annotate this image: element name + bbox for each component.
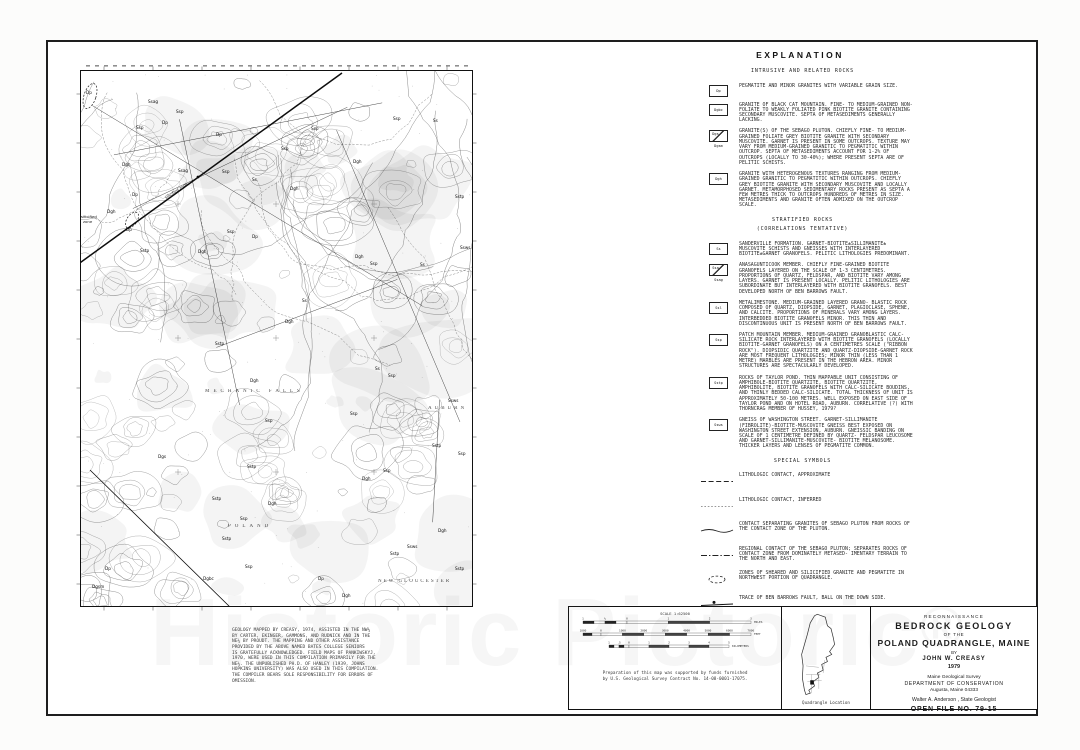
special-symbol-row: REGIONAL CONTACT OF THE SEBAGO PLUTON; S… [700, 547, 1012, 566]
map-unit-label: Ssag [178, 168, 188, 173]
title-reconnaissance: RECONNAISSANCE [871, 614, 1037, 619]
unit-label: Sstp [714, 381, 723, 385]
quadrangle-location-caption: Quadrangle Location [782, 700, 870, 705]
unit-label: Dgs [712, 132, 719, 136]
svg-text:5000: 5000 [705, 629, 712, 633]
map-unit-label: Sstp [455, 566, 464, 571]
svg-text:0: 0 [626, 617, 628, 621]
explanation-entry: SswsGNEISS OF WASHINGTON STREET. GARNET-… [700, 418, 1012, 449]
map-unit-label: Dgh [362, 476, 371, 481]
map-place-name: NEW GLOUCESTER [378, 579, 451, 584]
symbol-description: ZONES OF SHEARED AND SILICIFIED GRANITE … [739, 571, 915, 581]
title-address: Augusta, Maine 04333 [871, 688, 1037, 693]
map-unit-label: Dgh [342, 593, 351, 598]
unit-label: Ssl [715, 306, 722, 310]
svg-text:FEET: FEET [754, 632, 761, 636]
symbol-dot-icon [700, 498, 737, 517]
svg-text:.5: .5 [617, 641, 621, 645]
map-unit-label: Dp [86, 90, 92, 95]
unit-label: Dgh [715, 177, 722, 181]
unit-symbol: Sstp [700, 376, 737, 413]
explanation-entry: DgbcGRANITE OF BLACK CAT MOUNTAIN. FINE-… [700, 103, 1012, 124]
svg-text:2000: 2000 [640, 629, 647, 633]
special-symbol-row: LITHOLOGIC CONTACT, APPROXIMATE [700, 473, 1012, 492]
map-unit-label: Dgh [353, 159, 362, 164]
map-place-name: POLAND [228, 524, 272, 529]
unit-box-dgs: Dgs [709, 130, 728, 142]
map-unit-label: Sstp [455, 194, 464, 199]
map-unit-label: Dp [318, 576, 324, 581]
unit-box-dgbc: Dgbc [709, 104, 728, 116]
explanation-entries: INTRUSIVE AND RELATED ROCKSDpPEGMATITE A… [700, 69, 1012, 615]
map-unit-label: Ssp [383, 468, 391, 473]
unit-description: PATCH MOUNTAIN MEMBER. MEDIUM-GRAINED GR… [739, 333, 915, 370]
symbol-description: REGIONAL CONTACT OF THE SEBAGO PLUTON; S… [739, 547, 915, 563]
explanation-entry: SsSANDERVILLE FORMATION. GARNET-BIOTITE±… [700, 242, 1012, 258]
unit-sublabel: Ssag [714, 278, 723, 282]
map-unit-label: Ssp [370, 261, 378, 266]
map-unit-label: Dgs [158, 454, 166, 459]
map-unit-label: Dgh [438, 528, 447, 533]
unit-symbol: SsaSsag [700, 263, 737, 294]
map-unit-label: Sstp [222, 536, 231, 541]
map-unit-label: Ssp [350, 411, 358, 416]
map-unit-label: Ssp [265, 418, 273, 423]
map-unit-label: Dp [216, 132, 222, 137]
title-block: RECONNAISSANCE BEDROCK GEOLOGY OF THE PO… [871, 607, 1037, 709]
stratified-subheader: (CORRELATIONS TENTATIVE) [700, 227, 905, 233]
title-year: 1979 [871, 664, 1037, 670]
map-unit-label: Dgh [290, 186, 299, 191]
map-unit-label: Ssws [407, 544, 417, 549]
unit-box-dp: Dp [709, 85, 728, 97]
map-place-name: MECHANIC FALLS [205, 389, 304, 394]
title-survey: Maine Geological Survey [871, 675, 1037, 680]
location-panel: Quadrangle Location [782, 607, 871, 709]
map-unit-label: Dp [105, 566, 111, 571]
svg-text:3: 3 [750, 617, 752, 621]
map-unit-label: Dgh [355, 254, 364, 259]
explanation-panel: EXPLANATION INTRUSIVE AND RELATED ROCKSD… [700, 50, 1012, 620]
svg-text:1: 1 [608, 641, 610, 645]
unit-label: Dp [716, 89, 720, 93]
unit-symbol: Ssp [700, 333, 737, 370]
title-by: BY [871, 650, 1037, 655]
unit-description: GRANITE WITH HETEROGENOUS TEXTURES RANGI… [739, 172, 915, 209]
map-unit-label: Dp [162, 120, 168, 125]
map-unit-label: Dp [132, 192, 138, 197]
map-unit-label: Ssp [458, 451, 466, 456]
title-author: JOHN W. CREASY [871, 656, 1037, 662]
svg-text:1: 1 [648, 641, 650, 645]
map-unit-label: Dgh [285, 319, 294, 324]
unit-sublabel: Dgsm [714, 144, 723, 148]
map-unit-label: Ss [420, 262, 425, 267]
unit-label: Dgbc [714, 108, 723, 112]
map-unit-label: Ssag [148, 99, 158, 104]
title-department: DEPARTMENT OF CONSERVATION [871, 681, 1037, 687]
quadrangle-location-marker [810, 680, 814, 684]
intrusive-header: INTRUSIVE AND RELATED ROCKS [700, 69, 905, 75]
unit-label: Ssws [714, 423, 723, 427]
explanation-entry: SspPATCH MOUNTAIN MEMBER. MEDIUM-GRAINED… [700, 333, 1012, 370]
unit-box-ssl: Ssl [709, 302, 728, 314]
map-unit-label: Dp [252, 234, 258, 239]
stratified-header: STRATIFIED ROCKS [700, 218, 905, 224]
unit-box-dgh: Dgh [709, 173, 728, 185]
unit-description: GRANITE OF BLACK CAT MOUNTAIN. FINE- TO … [739, 103, 915, 124]
geologic-map: DpSsagSspDpSspDpDghSsagSspSsDpDghDpSstpS… [80, 70, 473, 607]
svg-text:5: 5 [728, 641, 730, 645]
svg-text:1000: 1000 [619, 629, 626, 633]
map-unit-label: Ssp [240, 516, 248, 521]
support-note: Preparation of this map was supported by… [569, 671, 781, 682]
special-symbol-row: ZONES OF SHEARED AND SILICIFIED GRANITE … [700, 571, 1012, 590]
map-unit-label: Sstp [390, 551, 399, 556]
credits-note: GEOLOGY MAPPED BY CREASY, 1974, ASSISTED… [232, 628, 422, 684]
map-unit-label: Dgh [107, 209, 116, 214]
svg-text:3000: 3000 [662, 629, 669, 633]
footer-block: SCALE 1:625001½0123MILES1000010002000300… [568, 606, 1038, 710]
unit-description: GNEISS OF WASHINGTON STREET. GARNET-SILL… [739, 418, 915, 449]
map-unit-label: Ssp [311, 126, 319, 131]
symbol-description: LITHOLOGIC CONTACT, INFERRED [739, 498, 915, 503]
svg-text:0: 0 [600, 629, 602, 633]
map-unit-label: Sstp [247, 464, 256, 469]
map-place-name: AUBURN [428, 406, 467, 411]
unit-symbol: Dp [700, 84, 737, 97]
svg-text:4000: 4000 [683, 629, 690, 633]
svg-text:3: 3 [688, 641, 690, 645]
map-unit-label: Ssp [176, 109, 184, 114]
unit-symbol: Ssl [700, 301, 737, 327]
scale-bars: SCALE 1:625001½0123MILES1000010002000300… [569, 607, 781, 669]
explanation-entry: SslMETALIMESTONE. MEDIUM-GRAINED LAYERED… [700, 301, 1012, 327]
map-unit-label: Sstp [215, 341, 224, 346]
symbol-description: TRACE OF BEN BARROWS FAULT, BALL ON THE … [739, 596, 915, 601]
svg-text:0: 0 [628, 641, 630, 645]
unit-description: GRANITE(S) OF THE SEBAGO PLUTON. CHIEFLY… [739, 129, 915, 166]
map-unit-label: Dgsm [92, 584, 104, 589]
unit-label: Ss [716, 247, 720, 251]
map-unit-label: Sstp [140, 248, 149, 253]
symbol-dash-icon [700, 473, 737, 492]
unit-symbol: DgsDgsm [700, 129, 737, 166]
svg-text:2: 2 [709, 617, 711, 621]
special-symbol-row: CONTACT SEPARATING GRANITES OF SEBAGO PL… [700, 522, 1012, 541]
map-unit-label: Dgbc [203, 576, 215, 581]
map-unit-label: Ssp [393, 116, 401, 121]
map-unit-label: Sstp [432, 443, 441, 448]
title-state-geologist: Walter A. Anderson , State Geologist [871, 697, 1037, 703]
map-unit-label: Sstp [212, 496, 221, 501]
unit-description: ANASAGUNTICOOK MEMBER. CHIEFLY FINE-GRAI… [739, 263, 915, 294]
unit-symbol: Ss [700, 242, 737, 258]
title-quadrangle: POLAND QUADRANGLE, MAINE [871, 638, 1037, 648]
unit-description: METALIMESTONE. MEDIUM-GRAINED LAYERED GR… [739, 301, 915, 327]
map-unit-label: Dgh [122, 162, 131, 167]
svg-text:1: 1 [667, 617, 669, 621]
symbol-ellipse-icon [700, 571, 737, 590]
maine-outline-map [782, 610, 870, 696]
map-unit-label: Ssp [245, 564, 253, 569]
map-unit-label: Ss [252, 177, 257, 182]
map-unit-label: Dgh [250, 378, 259, 383]
map-unit-label: Ssws [460, 245, 470, 250]
map-unit-label: Dgh [268, 501, 277, 506]
symbol-description: CONTACT SEPARATING GRANITES OF SEBAGO PL… [739, 522, 915, 532]
unit-label: Ssa [712, 266, 719, 270]
map-unit-label: Ss [375, 366, 380, 371]
explanation-title: EXPLANATION [700, 50, 900, 60]
unit-symbol: Dgbc [700, 103, 737, 124]
title-open-file: OPEN FILE NO. 79-15 [871, 706, 1037, 713]
map-unit-label: Ssp [281, 146, 289, 151]
map-annotation: zone [83, 219, 93, 224]
unit-label: Ssp [715, 338, 722, 342]
svg-text:4: 4 [708, 641, 710, 645]
map-unit-label: Ssp [388, 373, 396, 378]
unit-box-ssp: Ssp [709, 334, 728, 346]
scale-panel: SCALE 1:625001½0123MILES1000010002000300… [569, 607, 782, 709]
special-symbols-header: SPECIAL SYMBOLS [700, 459, 905, 465]
unit-box-ssws: Ssws [709, 419, 728, 431]
svg-text:1000: 1000 [580, 629, 587, 633]
map-unit-label: Ssp [136, 125, 144, 130]
symbol-dashdot-icon [700, 547, 737, 566]
symbol-solid-icon [700, 522, 737, 541]
explanation-entry: DghGRANITE WITH HETEROGENOUS TEXTURES RA… [700, 172, 1012, 209]
unit-description: ROCKS OF TAYLOR POND. THIN MAPPABLE UNIT… [739, 376, 915, 413]
map-unit-label: Ssp [227, 229, 235, 234]
explanation-entry: SstpROCKS OF TAYLOR POND. THIN MAPPABLE … [700, 376, 1012, 413]
map-unit-label: Ssp [222, 169, 230, 174]
explanation-entry: SsaSsagANASAGUNTICOOK MEMBER. CHIEFLY FI… [700, 263, 1012, 294]
svg-text:KILOMETERS: KILOMETERS [732, 644, 749, 648]
map-unit-label: Ss [302, 298, 307, 303]
map-sheet-page: { "watermark": {"text": "Historic Pictor… [0, 0, 1080, 750]
map-unit-label: Dgh [198, 249, 207, 254]
svg-text:2: 2 [668, 641, 670, 645]
svg-text:1: 1 [582, 617, 584, 621]
geologic-map-image: DpSsagSspDpSspDpDghSsagSspSsDpDghDpSstpS… [80, 70, 473, 607]
map-unit-label: Ssws [448, 398, 458, 403]
unit-symbol: Ssws [700, 418, 737, 449]
svg-text:½: ½ [604, 617, 606, 621]
map-unit-label: Dp [126, 227, 132, 232]
unit-box-sstp: Sstp [709, 377, 728, 389]
svg-text:MILES: MILES [754, 620, 763, 624]
special-symbol-row: LITHOLOGIC CONTACT, INFERRED [700, 498, 1012, 517]
explanation-entry: DgsDgsmGRANITE(S) OF THE SEBAGO PLUTON. … [700, 129, 1012, 166]
explanation-entry: DpPEGMATITE AND MINOR GRANITES WITH VARI… [700, 84, 1012, 97]
symbol-description: LITHOLOGIC CONTACT, APPROXIMATE [739, 473, 915, 478]
title-main: BEDROCK GEOLOGY [871, 621, 1037, 631]
unit-symbol: Dgh [700, 172, 737, 209]
unit-description: SANDERVILLE FORMATION. GARNET-BIOTITE±SI… [739, 242, 915, 258]
svg-text:SCALE 1:62500: SCALE 1:62500 [660, 611, 690, 616]
title-of-the: OF THE [871, 632, 1037, 637]
unit-box-ssa: Ssa [709, 264, 728, 276]
map-unit-label: Ss [433, 118, 438, 123]
svg-text:6000: 6000 [726, 629, 733, 633]
unit-box-ss: Ss [709, 243, 728, 255]
unit-description: PEGMATITE AND MINOR GRANITES WITH VARIAB… [739, 84, 915, 97]
